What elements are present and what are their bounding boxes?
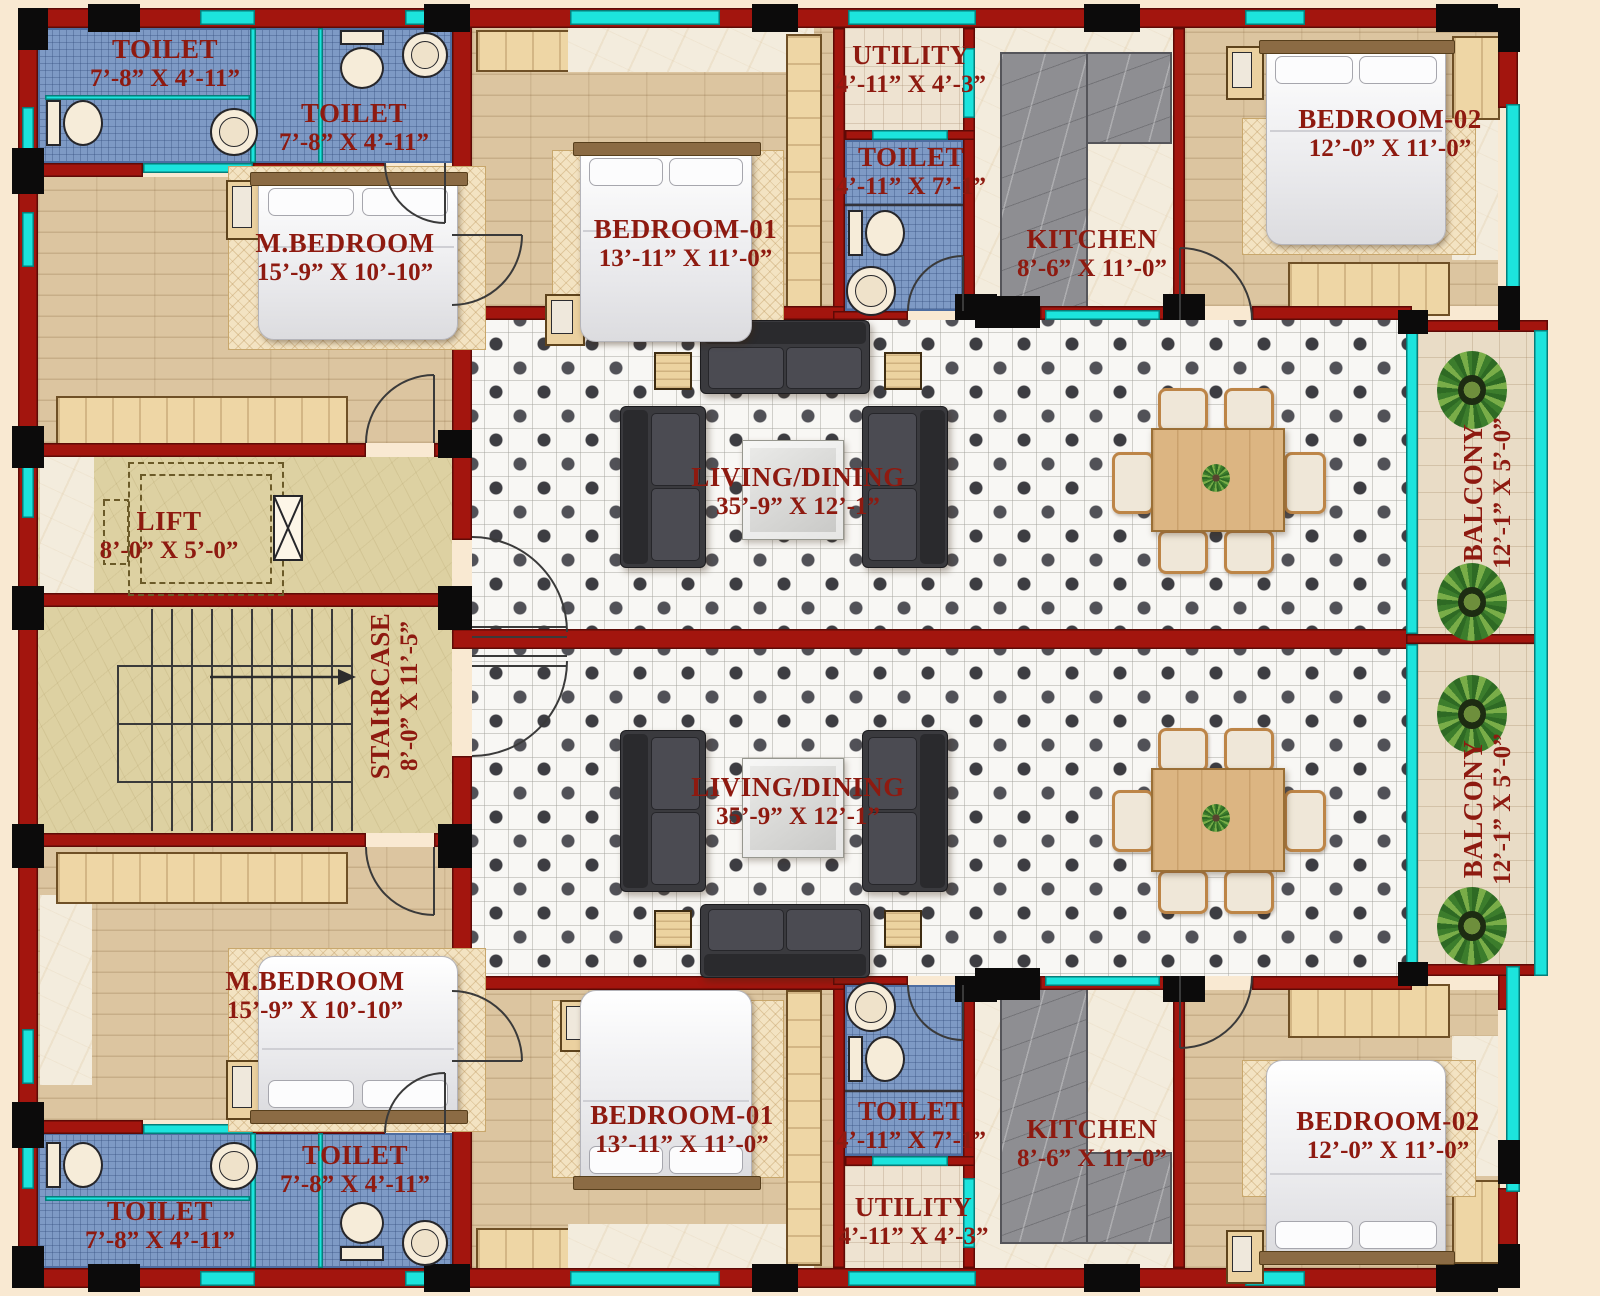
room-dims: 12’-0” X 11’-0” [1288, 1137, 1488, 1166]
nightstand [545, 294, 585, 346]
floor-entry-nook-bottom [40, 895, 92, 1085]
wall-h4a [38, 833, 366, 847]
room-name: TOILET [836, 1096, 986, 1127]
room-label-toilet-top-left-2: TOILET 7’-8” X 4’-11” [248, 98, 460, 157]
room-label-bedroom01-top: BEDROOM-01 13’-11” X 11’-0” [558, 214, 813, 273]
room-name: KITCHEN [1008, 1114, 1176, 1145]
column-block [18, 8, 48, 50]
column-block [1398, 310, 1428, 334]
wall-h2a [38, 443, 366, 457]
column-block [1398, 962, 1428, 986]
room-name: M.BEDROOM [225, 228, 465, 259]
table-plant [1200, 462, 1232, 494]
room-label-living-bottom: LIVING/DINING 35’-9” X 12’-1” [608, 772, 988, 831]
column-block [88, 4, 140, 32]
column-block [12, 426, 44, 468]
column-block [12, 1102, 44, 1148]
wc-toilet [46, 1142, 103, 1188]
window-bottom-4 [848, 1271, 976, 1286]
room-name: STAItRCASE [365, 585, 396, 807]
wash-basin [846, 266, 896, 316]
room-label-kitchen-top: KITCHEN 8’-6” X 11’-0” [1008, 224, 1176, 283]
room-label-utility-bottom: UTILITY 4’-11” X 4’-3” [836, 1192, 991, 1251]
room-label-mbedroom-bottom: M.BEDROOM 15’-9” X 10’-10” [195, 966, 435, 1025]
column-block [12, 148, 44, 194]
room-name: LIVING/DINING [608, 462, 988, 493]
window-top-4 [848, 10, 976, 25]
room-dims: 4’-11” X 4’-3” [836, 1223, 991, 1252]
window-top-5 [1245, 10, 1305, 25]
dining-chair [1112, 452, 1154, 514]
wall-living-south-1 [452, 976, 845, 990]
room-dims: 7’-8” X 4’-11” [250, 1171, 460, 1200]
column-block [12, 586, 44, 630]
column-block [12, 824, 44, 868]
glass-balcony-inner-top [1406, 330, 1418, 634]
room-name: TOILET [248, 98, 460, 129]
room-dims: 8’-0” X 5’-0” [80, 537, 258, 566]
window-left-3 [22, 460, 34, 518]
glass-balcony-outer [1534, 330, 1548, 976]
side-table [884, 352, 922, 390]
room-name: BALCONY [1458, 408, 1489, 578]
window-utility-bottom [872, 1156, 948, 1166]
room-label-toilet-bottom-left-1: TOILET 7’-8” X 4’-11” [45, 1196, 275, 1255]
window-left-2 [22, 212, 34, 267]
dining-chair [1224, 728, 1274, 772]
room-name: TOILET [836, 142, 986, 173]
wash-basin [846, 982, 896, 1032]
column-block [424, 4, 470, 32]
dining-chair [1112, 790, 1154, 852]
column-block [1084, 4, 1140, 32]
window-left-4 [22, 1029, 34, 1084]
wardrobe-mbed-top [56, 396, 348, 448]
room-name: LIFT [80, 506, 258, 537]
dining-chair [1224, 388, 1274, 432]
column-block [752, 4, 798, 32]
room-dims: 35’-9” X 12’-1” [608, 803, 988, 832]
table-plant [1200, 802, 1232, 834]
wardrobe-bedroom01-top-left [476, 30, 570, 72]
column-block [12, 1246, 44, 1288]
room-name: UTILITY [836, 1192, 991, 1223]
column-block [1084, 1264, 1140, 1292]
column-block [424, 1264, 470, 1292]
window-bottom-3 [570, 1271, 720, 1286]
room-name: LIVING/DINING [608, 772, 988, 803]
wc-toilet [848, 210, 905, 256]
wardrobe-bedroom01-bottom-left [476, 1228, 570, 1270]
room-dims: 7’-8” X 4’-11” [248, 129, 460, 158]
column-block [752, 1264, 798, 1292]
wall-living-north-3 [1252, 306, 1412, 320]
room-label-bedroom02-bottom: BEDROOM-02 12’-0” X 11’-0” [1288, 1106, 1488, 1165]
window-kitchen-south-top [1045, 310, 1160, 320]
wardrobe-mbed-bottom [56, 852, 348, 904]
glass-balcony-inner-bottom [1406, 644, 1418, 964]
room-label-bedroom01-bottom: BEDROOM-01 13’-11” X 11’-0” [552, 1100, 812, 1159]
wardrobe-bedroom02-bottom-bar [1288, 984, 1450, 1038]
side-table [654, 352, 692, 390]
room-dims: 4’-11” X 7’-1” [836, 173, 986, 202]
side-table [654, 910, 692, 948]
room-label-bedroom02-top: BEDROOM-02 12’-0” X 11’-0” [1290, 104, 1490, 163]
room-name: BEDROOM-01 [558, 214, 813, 245]
room-label-mbedroom-top: M.BEDROOM 15’-9” X 10’-10” [225, 228, 465, 287]
nightstand [1226, 46, 1264, 100]
room-name: M.BEDROOM [195, 966, 435, 997]
room-name: BALCONY [1458, 724, 1489, 894]
room-dims: 35’-9” X 12’-1” [608, 493, 988, 522]
wc-toilet [340, 1202, 384, 1261]
window-utility-top [872, 130, 948, 140]
dining-chair [1158, 870, 1208, 914]
dining-chair [1284, 452, 1326, 514]
dining-chair [1224, 530, 1274, 574]
wc-toilet [848, 1036, 905, 1082]
column-block [1498, 1140, 1520, 1184]
room-dims: 8’-0” X 11’-5” [396, 585, 425, 807]
dining-chair [1224, 870, 1274, 914]
column-block [1498, 286, 1520, 330]
column-block [1436, 1264, 1498, 1292]
room-dims: 12’-1” X 5’-0” [1489, 724, 1518, 894]
room-dims: 12’-0” X 11’-0” [1290, 135, 1490, 164]
column-block [1163, 294, 1205, 320]
room-label-utility-top: UTILITY 4’-11” X 4’-3” [836, 40, 986, 99]
room-dims: 15’-9” X 10’-10” [225, 259, 465, 288]
potted-plant [1432, 882, 1512, 970]
room-name: BEDROOM-02 [1288, 1106, 1488, 1137]
room-dims: 4’-11” X 4’-3” [836, 71, 986, 100]
room-name: TOILET [250, 1140, 460, 1171]
room-dims: 13’-11” X 11’-0” [558, 245, 813, 274]
room-label-balcony-top: BALCONY 12’-1” X 5’-0” [1458, 408, 1516, 578]
wall-h1a [38, 163, 143, 177]
room-label-living-top: LIVING/DINING 35’-9” X 12’-1” [608, 462, 988, 521]
dining-chair [1158, 530, 1208, 574]
room-label-balcony-bottom: BALCONY 12’-1” X 5’-0” [1458, 724, 1516, 894]
double-bed-bedroom01-bottom [580, 990, 752, 1190]
room-dims: 7’-8” X 4’-11” [45, 1227, 275, 1256]
room-dims: 4’-11” X 7’-1” [836, 1127, 986, 1156]
window-top-3 [570, 10, 720, 25]
wc-toilet [46, 100, 103, 146]
room-label-lift: LIFT 8’-0” X 5’-0” [80, 506, 258, 565]
room-name: BEDROOM-02 [1290, 104, 1490, 135]
column-block [1498, 8, 1520, 52]
room-name: TOILET [52, 34, 278, 65]
wall-h5a [38, 1120, 143, 1134]
room-label-staircase: STAItRCASE 8’-0” X 11’-5” [365, 585, 425, 807]
dining-chair [1158, 728, 1208, 772]
room-name: BEDROOM-01 [552, 1100, 812, 1131]
wc-toilet [340, 30, 384, 89]
room-label-toilet-top-left-1: TOILET 7’-8” X 4’-11” [52, 34, 278, 93]
window-sill-bedroom01-bottom [568, 1224, 814, 1268]
window-sill-bedroom01-top [568, 28, 814, 72]
wall-divider-units [452, 629, 1412, 649]
room-label-toilet-bottom-left-2: TOILET 7’-8” X 4’-11” [250, 1140, 460, 1199]
room-dims: 15’-9” X 10’-10” [195, 997, 435, 1026]
window-kitchen-north-bottom [1045, 976, 1160, 986]
room-dims: 8’-6” X 11’-0” [1008, 255, 1176, 284]
window-top-1 [200, 10, 255, 25]
column-block [438, 586, 472, 630]
room-dims: 8’-6” X 11’-0” [1008, 1145, 1176, 1174]
column-block [88, 1264, 140, 1292]
room-name: UTILITY [836, 40, 986, 71]
wash-basin [402, 32, 448, 78]
floor-plan: TOILET 7’-8” X 4’-11” TOILET 7’-8” X 4’-… [0, 0, 1600, 1296]
room-label-toilet-long-top: TOILET 4’-11” X 7’-1” [836, 142, 986, 201]
column-block [438, 824, 472, 868]
room-dims: 7’-8” X 4’-11” [52, 65, 278, 94]
column-block [955, 976, 997, 1002]
column-block [1498, 1244, 1520, 1288]
wash-basin [402, 1220, 448, 1266]
side-table [884, 910, 922, 948]
window-bottom-1 [200, 1271, 255, 1286]
column-block [1163, 976, 1205, 1002]
room-name: TOILET [45, 1196, 275, 1227]
room-name: KITCHEN [1008, 224, 1176, 255]
column-block [955, 294, 997, 320]
column-block [438, 430, 472, 458]
dining-chair [1284, 790, 1326, 852]
wall-living-south-3 [1252, 976, 1412, 990]
wall-left [18, 8, 38, 1288]
room-dims: 12’-1” X 5’-0” [1489, 408, 1518, 578]
dining-chair [1158, 388, 1208, 432]
sofa-three-seat-bottom-unit [700, 904, 870, 978]
room-label-kitchen-bottom: KITCHEN 8’-6” X 11’-0” [1008, 1114, 1176, 1173]
column-block [1436, 4, 1498, 32]
room-dims: 13’-11” X 11’-0” [552, 1131, 812, 1160]
room-label-toilet-long-bottom: TOILET 4’-11” X 7’-1” [836, 1096, 986, 1155]
